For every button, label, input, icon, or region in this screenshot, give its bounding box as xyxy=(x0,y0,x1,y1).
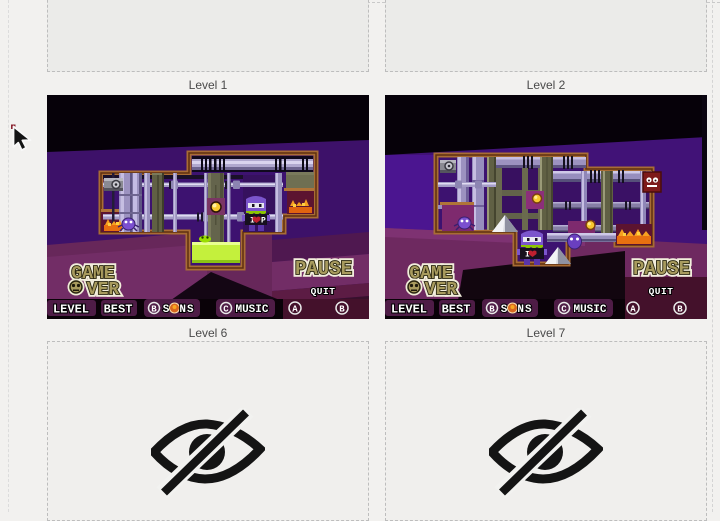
svg-text:NS: NS xyxy=(179,304,194,316)
svg-text:PAUSE: PAUSE xyxy=(295,258,352,280)
svg-text:QUIT: QUIT xyxy=(311,286,336,297)
svg-text:LEVEL: LEVEL xyxy=(53,303,89,317)
svg-text:B: B xyxy=(151,305,157,315)
svg-text:P: P xyxy=(261,217,266,226)
svg-text:MUSIC: MUSIC xyxy=(573,304,606,316)
svg-text:PAUSE: PAUSE xyxy=(633,258,690,280)
svg-text:B: B xyxy=(489,305,495,315)
svg-text:BEST: BEST xyxy=(104,303,133,317)
svg-text:C: C xyxy=(561,305,567,315)
svg-text:LEVEL: LEVEL xyxy=(391,303,427,317)
svg-text:B: B xyxy=(339,305,345,315)
svg-text:A: A xyxy=(630,305,636,315)
svg-text:BEST: BEST xyxy=(442,303,471,317)
svg-text:A: A xyxy=(292,305,298,315)
svg-text:NS: NS xyxy=(517,304,532,316)
svg-text:B: B xyxy=(677,305,683,315)
svg-text:VER: VER xyxy=(425,280,458,300)
svg-text:S: S xyxy=(163,304,170,316)
svg-text:QUIT: QUIT xyxy=(649,286,674,297)
svg-text:VER: VER xyxy=(87,280,120,300)
svg-text:S: S xyxy=(501,304,508,316)
svg-text:C: C xyxy=(223,305,229,315)
svg-text:MUSIC: MUSIC xyxy=(235,304,268,316)
